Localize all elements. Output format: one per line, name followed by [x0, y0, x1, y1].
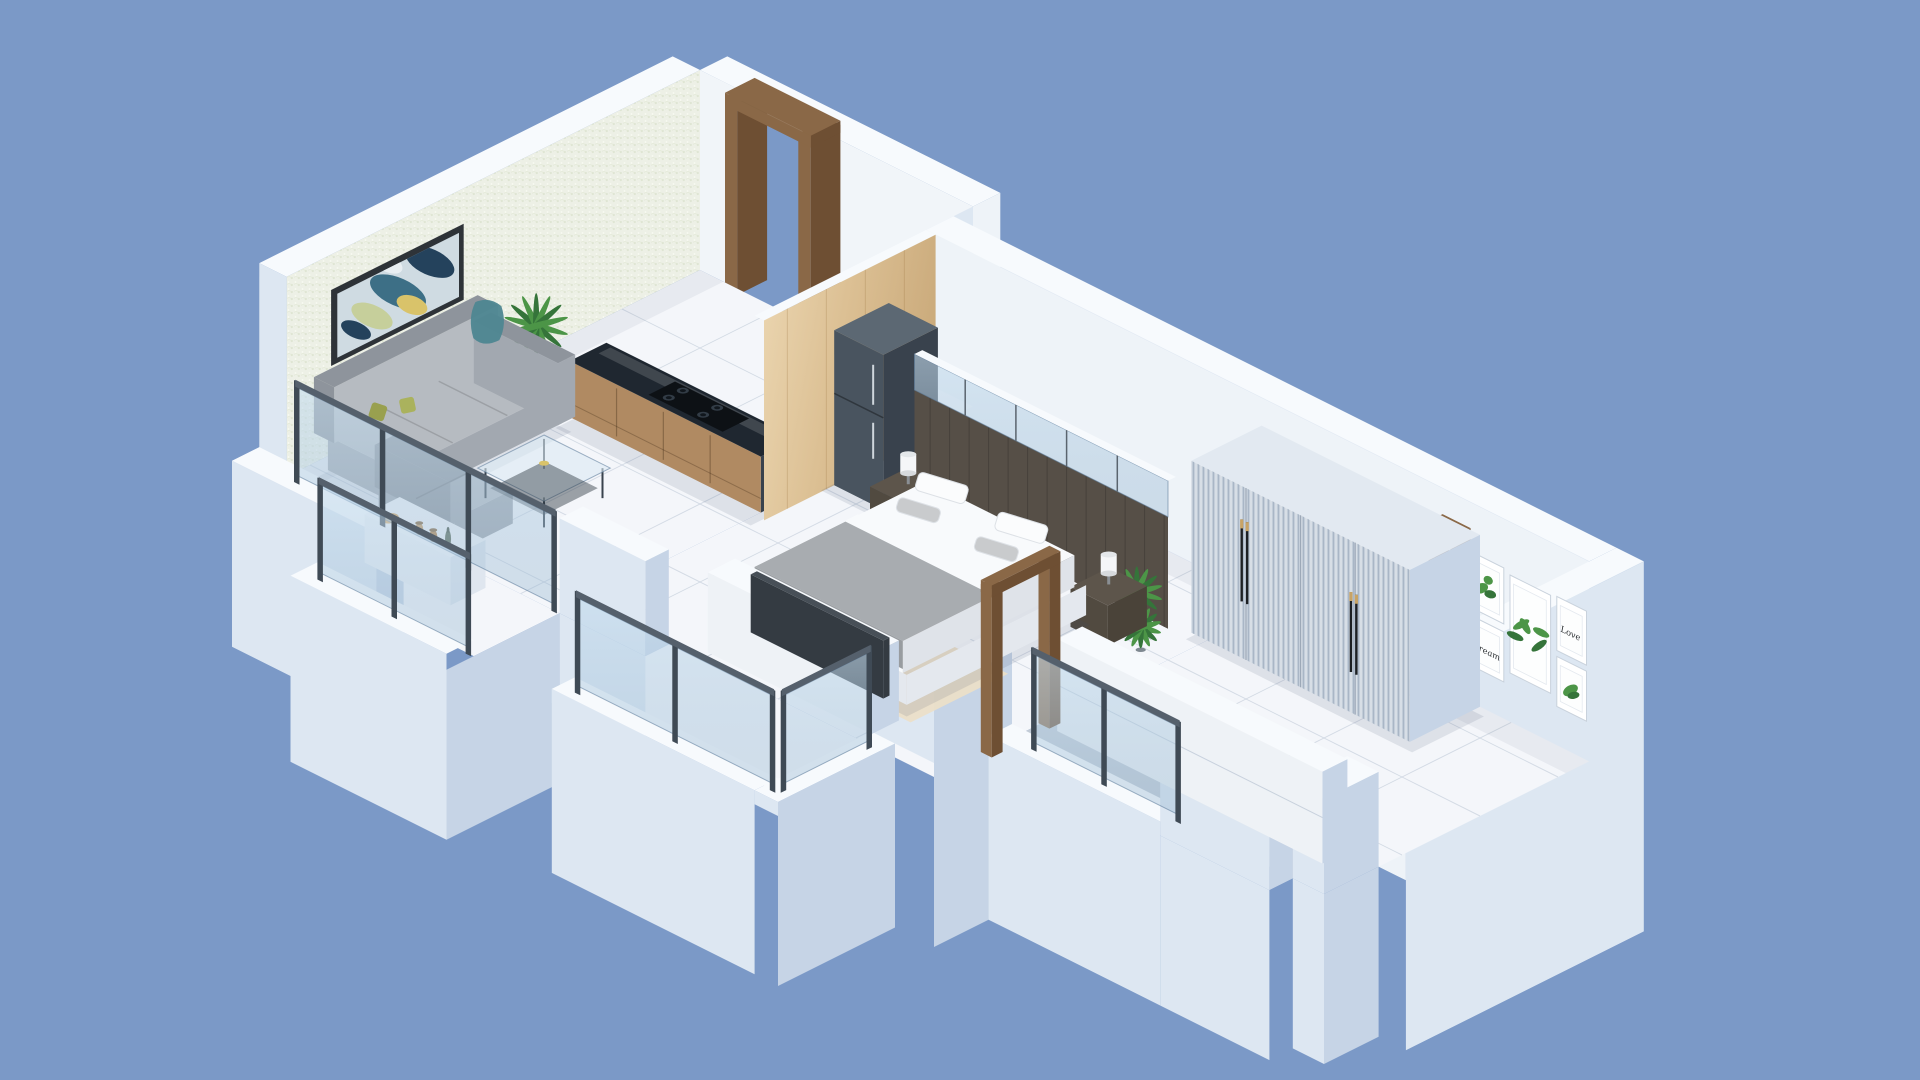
sofa-pillow [399, 396, 417, 414]
floorplan-stage: DreamLove [0, 0, 1920, 1080]
passage-half-wall [1322, 759, 1347, 864]
fridge-body [834, 330, 883, 510]
teal-throw-blanket [471, 300, 504, 344]
tv-panel [883, 638, 889, 699]
wardrobe-handle [1241, 519, 1243, 601]
sofa-armrest [558, 355, 575, 426]
isometric-floorplan-render: DreamLove [0, 0, 1920, 1080]
wardrobe-body [1410, 535, 1480, 742]
wardrobe-handle [1350, 592, 1352, 672]
wardrobe-handle [1246, 522, 1248, 604]
wardrobe-handle [1355, 595, 1357, 675]
